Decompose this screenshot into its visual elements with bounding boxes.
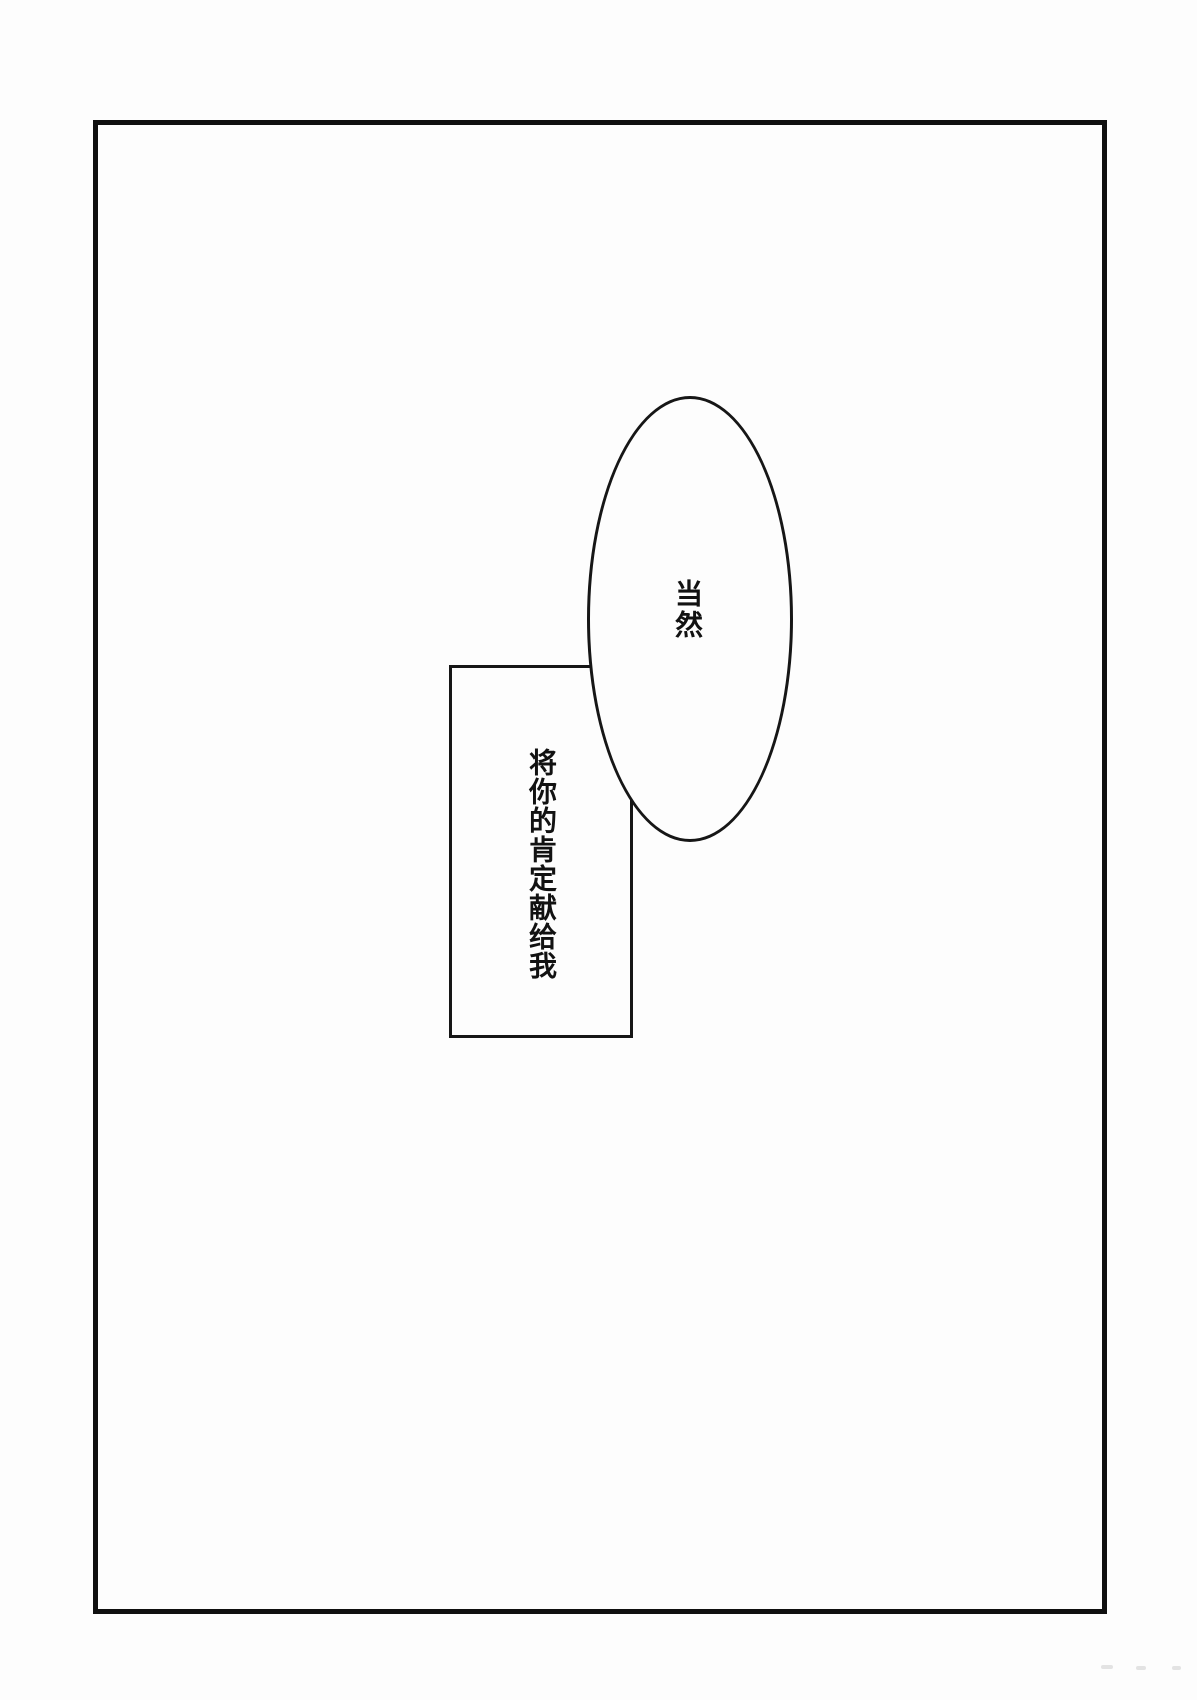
- scan-artifact: [1136, 1666, 1146, 1670]
- manga-page: 当然 将你的肯定献给我: [0, 0, 1197, 1700]
- speech-text-box: 将你的肯定献给我: [525, 748, 555, 980]
- scan-artifact: [1101, 1665, 1113, 1669]
- scan-artifact: [1172, 1666, 1181, 1670]
- speech-text-ellipse: 当然: [671, 579, 701, 641]
